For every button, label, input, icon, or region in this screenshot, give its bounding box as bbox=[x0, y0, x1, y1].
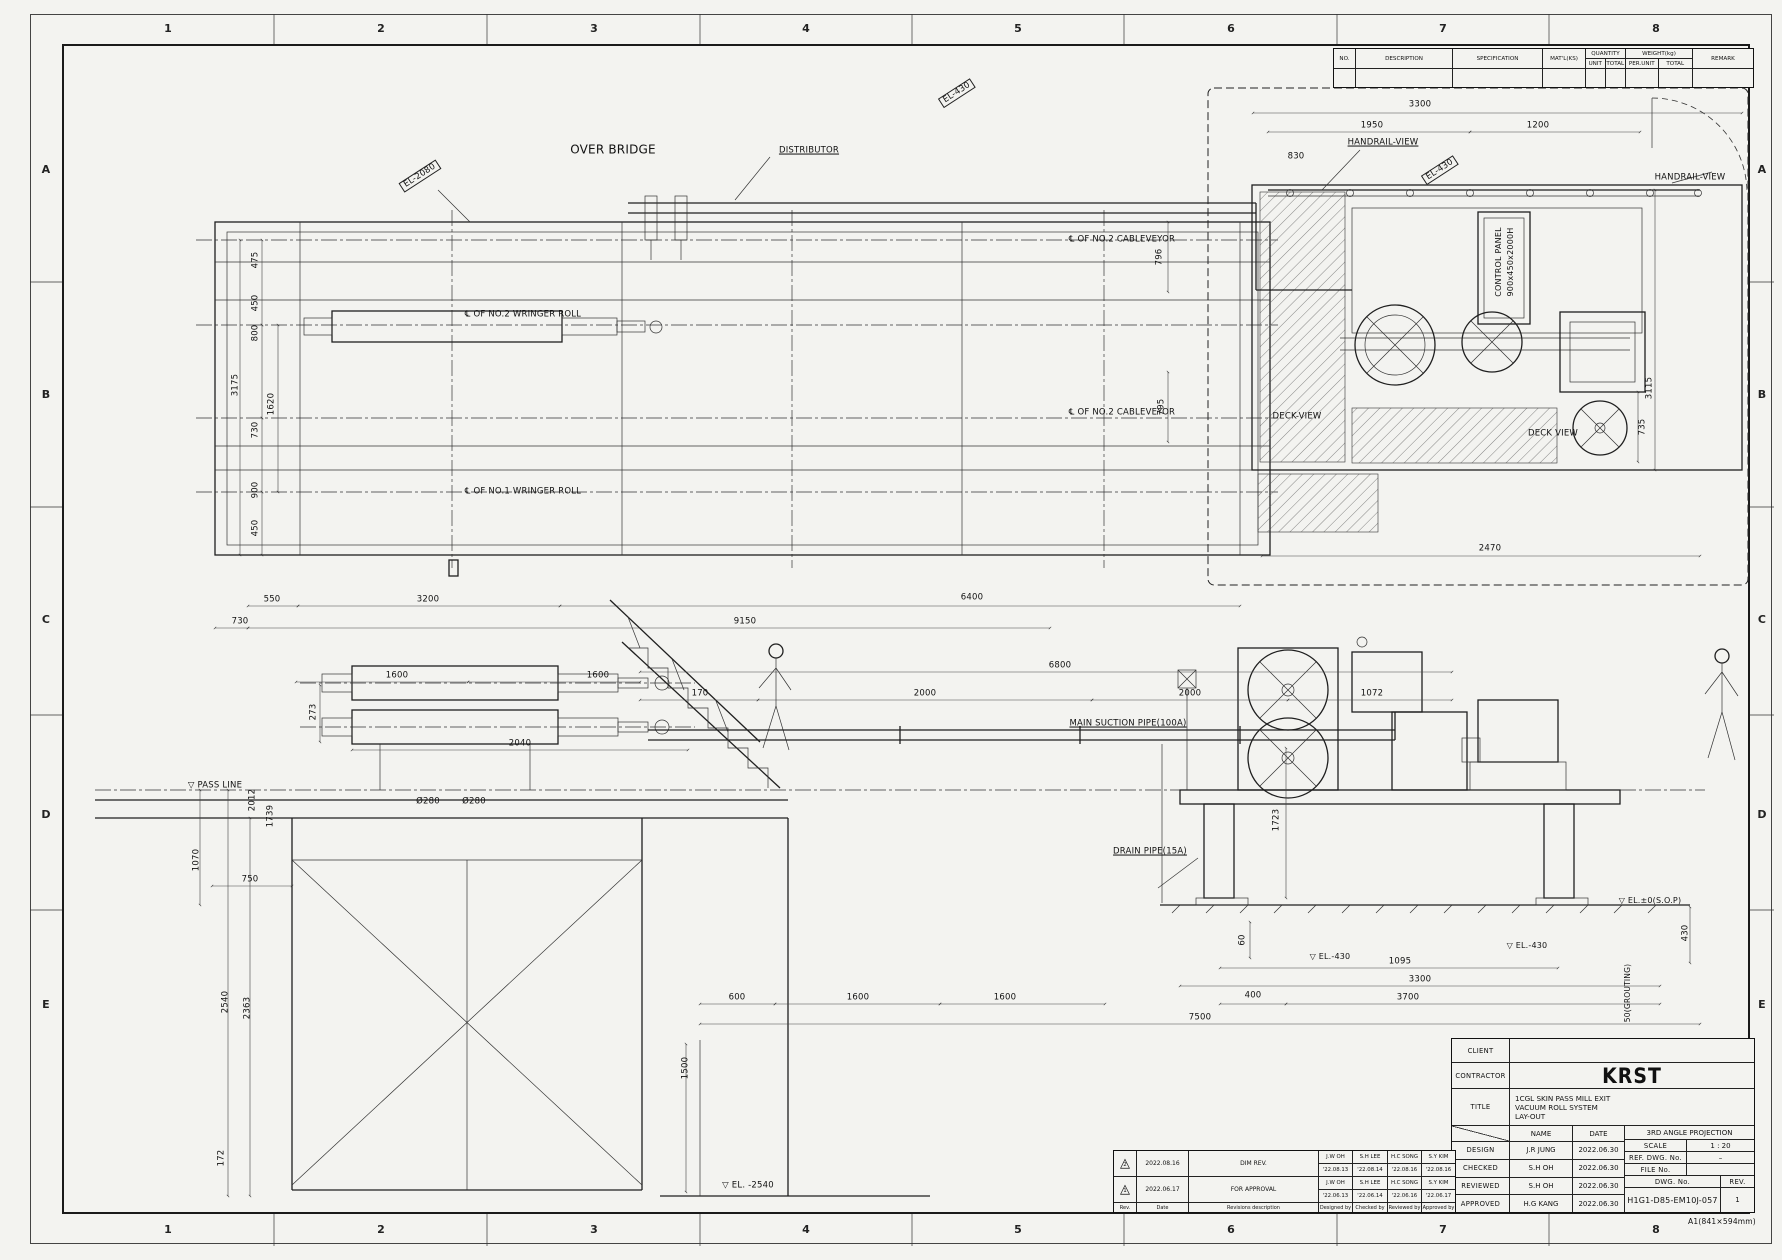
grid-col-8-top: 8 bbox=[1652, 23, 1660, 35]
revision-approved-by: S.Y KIM'22.06.17 bbox=[1422, 1177, 1455, 1203]
reviewed-name: S.H OH bbox=[1510, 1178, 1573, 1196]
dwg-no-value: H1G1-D85-EM10J-057 bbox=[1625, 1188, 1720, 1212]
dim-1620: 1620 bbox=[268, 393, 277, 415]
dim-1600: 1600 bbox=[994, 994, 1016, 1003]
parts-col-total: TOTAL bbox=[1606, 59, 1625, 69]
dim-2000: 2000 bbox=[914, 690, 936, 699]
revision-description: DIM REV. bbox=[1189, 1151, 1319, 1177]
checked-date: 2022.06.30 bbox=[1573, 1160, 1624, 1178]
dim-273: 273 bbox=[310, 704, 319, 721]
label-deck-view-left: DECK-VIEW bbox=[1273, 413, 1322, 422]
parts-col-weight: WEIGHT(kg) bbox=[1626, 49, 1692, 59]
name-header: NAME bbox=[1510, 1126, 1573, 1142]
dim-60: 60 bbox=[1239, 934, 1248, 945]
reviewed-label: REVIEWED bbox=[1452, 1178, 1510, 1196]
date-header: DATE bbox=[1573, 1126, 1624, 1142]
rev-value: 1 bbox=[1721, 1188, 1754, 1212]
dim-1600: 1600 bbox=[386, 672, 408, 681]
grid-col-5-top: 5 bbox=[1014, 23, 1022, 35]
dim-550: 550 bbox=[264, 596, 281, 605]
parts-list-table: NO. DESCRIPTION SPECIFICATION MAT'L(KS) … bbox=[1333, 48, 1754, 88]
dim-2540: 2540 bbox=[222, 991, 231, 1013]
revision-approved-by: S.Y KIM'22.08.16 bbox=[1422, 1151, 1455, 1177]
parts-col-matl: MAT'L(KS) bbox=[1543, 49, 1586, 69]
label-handrail-view-plan: HANDRAIL-VIEW bbox=[1348, 139, 1419, 148]
grid-col-1-top: 1 bbox=[164, 23, 172, 35]
revision-number: 2 bbox=[1123, 1162, 1127, 1168]
dim-3115: 3115 bbox=[1646, 377, 1655, 399]
dim-430: 430 bbox=[1682, 925, 1691, 942]
revision-designed-by: J.W OH'22.08.13 bbox=[1319, 1151, 1353, 1177]
dim-3700: 3700 bbox=[1397, 994, 1419, 1003]
dim-2012: 2012 bbox=[249, 789, 258, 811]
label-main-suction-pipe: MAIN SUCTION PIPE(100A) bbox=[1069, 720, 1186, 729]
scale-label: SCALE bbox=[1625, 1140, 1687, 1152]
revision-reviewed-by: H.C SONG'22.08.16 bbox=[1388, 1151, 1422, 1177]
label-cl-no1-wringer-roll: ℄ OF NO.1 WRINGER ROLL bbox=[465, 488, 581, 497]
revision-row-2: △ 2 2022.08.16 DIM REV. J.W OH'22.08.13 … bbox=[1114, 1151, 1455, 1177]
parts-empty-row bbox=[1334, 69, 1753, 87]
dim-172: 172 bbox=[218, 1150, 227, 1167]
signoff-corner-cell bbox=[1452, 1126, 1510, 1142]
revision-designed-by: J.W OH'22.06.13 bbox=[1319, 1177, 1353, 1203]
label-el-0-sop: ▽ EL.±0(S.O.P) bbox=[1619, 897, 1682, 905]
revision-row-1: △ 1 2022.06.17 FOR APPROVAL J.W OH'22.06… bbox=[1114, 1177, 1455, 1203]
drawing-sheet: 1234567812345678ABCDEABCDEOVER BRIDGEDIS… bbox=[0, 0, 1782, 1260]
dim-730: 730 bbox=[232, 618, 249, 627]
approved-label: APPROVED bbox=[1452, 1195, 1510, 1212]
grid-row-e-right: E bbox=[1758, 999, 1766, 1011]
revision-reviewed-by: H.C SONG'22.06.16 bbox=[1388, 1177, 1422, 1203]
design-date: 2022.06.30 bbox=[1573, 1142, 1624, 1160]
contractor-label: CONTRACTOR bbox=[1452, 1063, 1510, 1089]
design-label: DESIGN bbox=[1452, 1142, 1510, 1160]
grid-row-c-left: C bbox=[42, 614, 50, 626]
grid-row-c-right: C bbox=[1758, 614, 1766, 626]
grid-col-7-top: 7 bbox=[1439, 23, 1447, 35]
dim-1200: 1200 bbox=[1527, 122, 1549, 131]
rev-label: REV. bbox=[1721, 1176, 1754, 1188]
dim-1723: 1723 bbox=[1273, 809, 1282, 831]
client-value bbox=[1510, 1039, 1754, 1063]
dim-450: 450 bbox=[252, 295, 261, 312]
grid-col-7-bottom: 7 bbox=[1439, 1224, 1447, 1236]
revision-symbol: △ 1 bbox=[1114, 1177, 1137, 1203]
label-el-430-right: ▽ EL.-430 bbox=[1507, 942, 1548, 950]
grid-col-6-bottom: 6 bbox=[1227, 1224, 1235, 1236]
contractor-logo: KRST bbox=[1510, 1063, 1754, 1089]
dim-796: 796 bbox=[1156, 249, 1165, 266]
grid-col-8-bottom: 8 bbox=[1652, 1224, 1660, 1236]
label-el-2540: ▽ EL. -2540 bbox=[722, 1182, 774, 1191]
dim-1500: 1500 bbox=[682, 1057, 691, 1079]
dim-450: 450 bbox=[252, 520, 261, 537]
revision-symbol: △ 2 bbox=[1114, 1151, 1137, 1177]
footer-checked-by: Checked by bbox=[1353, 1203, 1388, 1212]
footer-approved-by: Approved by bbox=[1422, 1203, 1455, 1212]
label-deck-view-right: DECK VIEW bbox=[1528, 430, 1578, 439]
dim-3300: 3300 bbox=[1409, 976, 1431, 985]
file-no-value bbox=[1687, 1164, 1754, 1176]
dim-1095: 1095 bbox=[1389, 958, 1411, 967]
checked-name: S.H OH bbox=[1510, 1160, 1573, 1178]
grid-row-a-left: A bbox=[42, 164, 51, 176]
label-grouting: 50(GROUTING) bbox=[1624, 964, 1632, 1022]
grid-col-5-bottom: 5 bbox=[1014, 1224, 1022, 1236]
dim-3300: 3300 bbox=[1409, 101, 1431, 110]
label-control-panel: CONTROL PANEL bbox=[1495, 227, 1503, 297]
tag-el-430-deck: EL-430 bbox=[1421, 155, 1459, 185]
tag-el-430-pipe: EL-430 bbox=[938, 78, 976, 108]
label-el-430-left: ▽ EL.-430 bbox=[1310, 953, 1351, 961]
dim-750: 750 bbox=[242, 876, 259, 885]
dim-2470: 2470 bbox=[1479, 545, 1501, 554]
title-label: TITLE bbox=[1452, 1089, 1510, 1126]
grid-row-a-right: A bbox=[1758, 164, 1767, 176]
dim-730: 730 bbox=[252, 422, 261, 439]
revision-number: 1 bbox=[1123, 1188, 1127, 1194]
checked-label: CHECKED bbox=[1452, 1160, 1510, 1178]
label-cl-no2-wringer-roll: ℄ OF NO.2 WRINGER ROLL bbox=[465, 311, 581, 320]
dim-3175: 3175 bbox=[232, 374, 241, 396]
label-pass-line: ▽ PASS LINE bbox=[188, 782, 242, 791]
dim-900: 900 bbox=[252, 482, 261, 499]
parts-col-quantity: QUANTITY bbox=[1586, 49, 1625, 59]
dim-170: 170 bbox=[692, 690, 709, 699]
grid-row-b-right: B bbox=[1758, 389, 1767, 401]
dim-2363: 2363 bbox=[244, 997, 253, 1019]
dim-735: 735 bbox=[1639, 419, 1648, 436]
reviewed-date: 2022.06.30 bbox=[1573, 1178, 1624, 1196]
approved-date: 2022.06.30 bbox=[1573, 1195, 1624, 1212]
parts-col-per-unit: PER.UNIT bbox=[1626, 59, 1659, 69]
footer-date: Date bbox=[1137, 1203, 1189, 1212]
grid-col-3-top: 3 bbox=[590, 23, 598, 35]
projection-note: 3RD ANGLE PROJECTION bbox=[1625, 1126, 1754, 1140]
dim-830: 830 bbox=[1288, 153, 1305, 162]
parts-col-no: NO. bbox=[1334, 49, 1356, 69]
grid-row-d-left: D bbox=[41, 809, 50, 821]
grid-col-1-bottom: 1 bbox=[164, 1224, 172, 1236]
dim-1600: 1600 bbox=[587, 672, 609, 681]
grid-col-2-top: 2 bbox=[377, 23, 385, 35]
dim-280: Ø280 bbox=[416, 798, 440, 807]
footer-designed-by: Designed by bbox=[1319, 1203, 1353, 1212]
parts-col-description: DESCRIPTION bbox=[1356, 49, 1453, 69]
dim-600: 600 bbox=[729, 994, 746, 1003]
dim-2040: 2040 bbox=[509, 740, 531, 749]
revision-table: △ 2 2022.08.16 DIM REV. J.W OH'22.08.13 … bbox=[1113, 1150, 1456, 1213]
footer-rev: Rev. bbox=[1114, 1203, 1137, 1212]
parts-col-weight-total: TOTAL bbox=[1659, 59, 1692, 69]
dim-3200: 3200 bbox=[417, 596, 439, 605]
footer-description: Revisions description bbox=[1189, 1203, 1319, 1212]
grid-row-e-left: E bbox=[42, 999, 50, 1011]
dim-1739: 1739 bbox=[267, 805, 276, 827]
label-control-panel-size: 900x450x2000H bbox=[1507, 228, 1515, 297]
file-no-label: FILE No. bbox=[1625, 1164, 1687, 1176]
grid-col-4-bottom: 4 bbox=[802, 1224, 810, 1236]
scale-value: 1 : 20 bbox=[1687, 1140, 1754, 1152]
revision-date: 2022.06.17 bbox=[1137, 1177, 1189, 1203]
dim-6400: 6400 bbox=[961, 594, 983, 603]
grid-row-d-right: D bbox=[1757, 809, 1766, 821]
parts-col-unit: UNIT bbox=[1586, 59, 1606, 69]
dim-7500: 7500 bbox=[1189, 1014, 1211, 1023]
dim-1070: 1070 bbox=[193, 849, 202, 871]
grid-col-3-bottom: 3 bbox=[590, 1224, 598, 1236]
revision-description: FOR APPROVAL bbox=[1189, 1177, 1319, 1203]
client-label: CLIENT bbox=[1452, 1039, 1510, 1063]
grid-col-6-top: 6 bbox=[1227, 23, 1235, 35]
revision-footer: Rev. Date Revisions description Designed… bbox=[1114, 1203, 1455, 1212]
revision-checked-by: S.H LEE'22.06.14 bbox=[1353, 1177, 1388, 1203]
dim-475: 475 bbox=[252, 252, 261, 269]
dim-795: 795 bbox=[1158, 399, 1167, 416]
label-distributor: DISTRIBUTOR bbox=[779, 147, 839, 156]
sheet-size-note: A1(841×594mm) bbox=[1688, 1218, 1756, 1226]
ref-dwg-value: – bbox=[1687, 1152, 1754, 1164]
title-line-1: 1CGL SKIN PASS MILL EXIT bbox=[1515, 1094, 1610, 1103]
dim-400: 400 bbox=[1245, 992, 1262, 1001]
title-line-2: VACUUM ROLL SYSTEM bbox=[1515, 1103, 1598, 1112]
dim-280: Ø280 bbox=[462, 798, 486, 807]
title-line-3: LAY-OUT bbox=[1515, 1112, 1545, 1121]
grid-col-2-bottom: 2 bbox=[377, 1224, 385, 1236]
label-drain-pipe: DRAIN PIPE(15A) bbox=[1113, 848, 1187, 857]
grid-row-b-left: B bbox=[42, 389, 51, 401]
label-handrail-view-right: HANDRAIL-VIEW bbox=[1655, 174, 1726, 183]
approved-name: H.G KANG bbox=[1510, 1195, 1573, 1212]
dim-6800: 6800 bbox=[1049, 662, 1071, 671]
label-over-bridge: OVER BRIDGE bbox=[570, 144, 656, 157]
grid-col-4-top: 4 bbox=[802, 23, 810, 35]
dim-1600: 1600 bbox=[847, 994, 869, 1003]
footer-reviewed-by: Reviewed by bbox=[1388, 1203, 1422, 1212]
dwg-no-label: DWG. No. bbox=[1625, 1176, 1720, 1188]
drawing-title: 1CGL SKIN PASS MILL EXIT VACUUM ROLL SYS… bbox=[1510, 1089, 1754, 1126]
tag-el-2080: EL-2080 bbox=[399, 159, 442, 192]
dim-1950: 1950 bbox=[1361, 122, 1383, 131]
dim-2000: 2000 bbox=[1179, 690, 1201, 699]
parts-col-remark: REMARK bbox=[1693, 49, 1753, 69]
dim-1072: 1072 bbox=[1361, 690, 1383, 699]
revision-checked-by: S.H LEE'22.08.14 bbox=[1353, 1151, 1388, 1177]
revision-date: 2022.08.16 bbox=[1137, 1151, 1189, 1177]
design-name: J.R JUNG bbox=[1510, 1142, 1573, 1160]
label-cl-no2-cableveyor-upper: ℄ OF NO.2 CABLEVEYOR bbox=[1069, 236, 1175, 245]
dim-9150: 9150 bbox=[734, 618, 756, 627]
title-block: CLIENT CONTRACTOR KRST TITLE 1CGL SKIN P… bbox=[1451, 1038, 1755, 1213]
dim-800: 800 bbox=[252, 325, 261, 342]
parts-col-specification: SPECIFICATION bbox=[1453, 49, 1543, 69]
ref-dwg-label: REF. DWG. No. bbox=[1625, 1152, 1687, 1164]
